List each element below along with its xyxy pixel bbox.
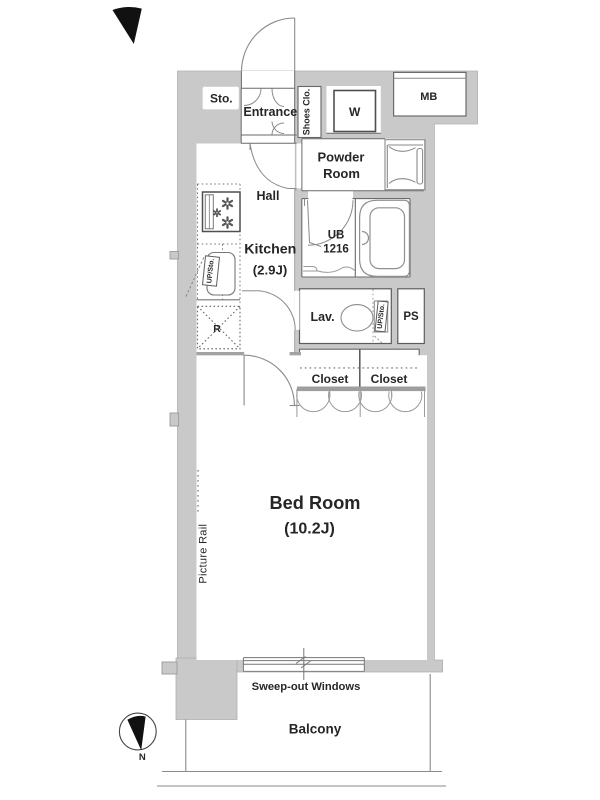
svg-text:Entrance: Entrance	[243, 105, 297, 119]
svg-text:R: R	[213, 323, 221, 335]
svg-text:1216: 1216	[323, 244, 349, 256]
svg-text:Picture Rail: Picture Rail	[197, 524, 209, 584]
svg-text:UB: UB	[328, 230, 345, 242]
svg-text:(2.9J): (2.9J)	[253, 263, 287, 278]
svg-text:Room: Room	[323, 166, 360, 181]
svg-text:Closet: Closet	[312, 372, 349, 386]
svg-text:Closet: Closet	[371, 372, 408, 386]
svg-text:PS: PS	[403, 311, 419, 323]
svg-text:N: N	[139, 752, 146, 763]
svg-text:MB: MB	[420, 91, 437, 103]
svg-text:Powder: Powder	[318, 150, 365, 165]
svg-text:Bed Room: Bed Room	[270, 493, 361, 513]
svg-text:Sto.: Sto.	[210, 92, 233, 106]
svg-text:Sweep-out Windows: Sweep-out Windows	[252, 681, 361, 693]
svg-text:W: W	[349, 105, 361, 119]
svg-text:(10.2J): (10.2J)	[284, 521, 335, 538]
svg-text:Shoes Clo.: Shoes Clo.	[302, 89, 312, 136]
svg-text:Balcony: Balcony	[289, 722, 342, 737]
svg-text:Lav.: Lav.	[310, 310, 334, 324]
svg-text:Hall: Hall	[257, 189, 280, 203]
svg-text:Kitchen: Kitchen	[244, 242, 296, 258]
